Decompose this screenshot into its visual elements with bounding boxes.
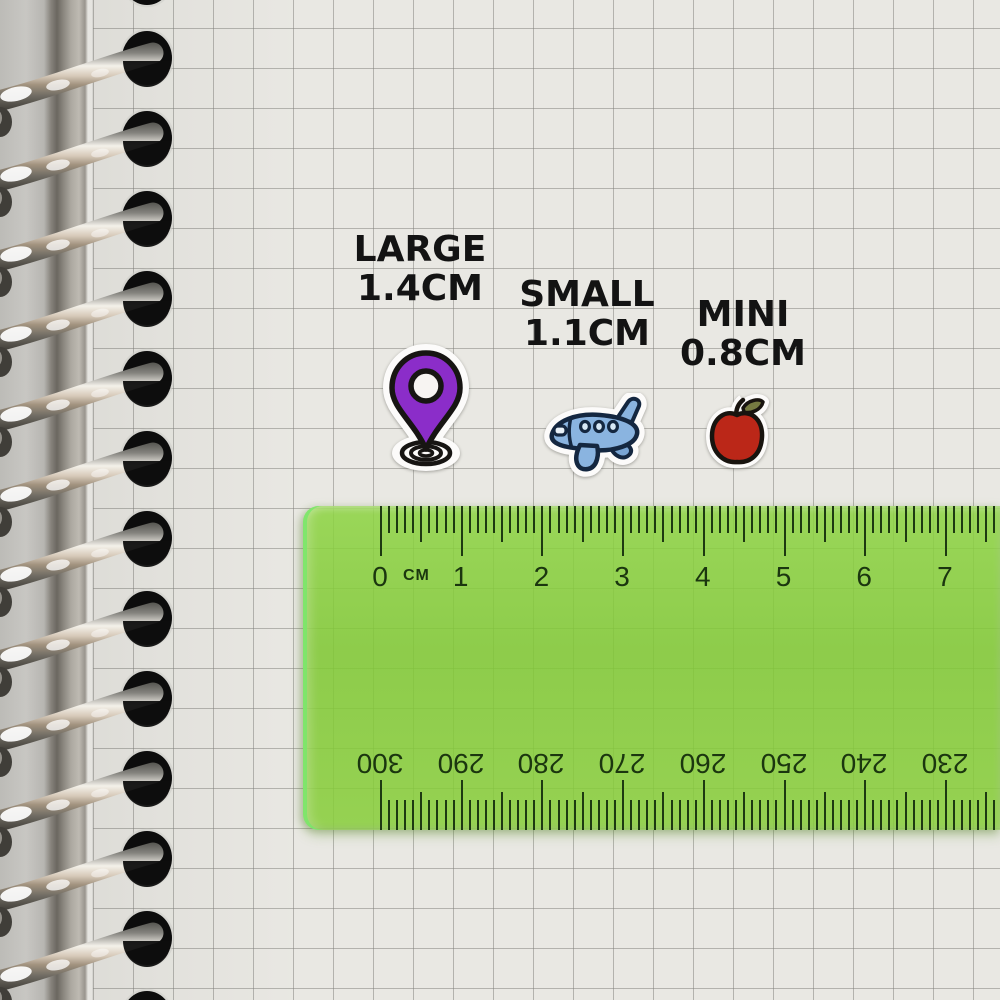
ruler-mm-tick [953,800,955,830]
ruler-cm-tick [759,506,761,533]
ruler-cm-tick [921,506,923,533]
ruler-cm-tick [719,506,721,533]
ruler-mm-tick [598,800,600,830]
ruler-mm-tick [727,800,729,830]
ruler-mm-tick [428,800,430,830]
ruler-mm-tick [743,792,745,830]
ruler-cm-tick [784,506,786,556]
ruler-cm-number: 1 [453,561,469,593]
ruler-mm-number: 260 [679,747,726,779]
ruler-cm-tick [485,506,487,533]
ruler-mm-tick [445,800,447,830]
ruler-mm-tick [961,800,963,830]
ruler-cm-tick [671,506,673,533]
ruler-cm-tick [775,506,777,533]
ruler-mm-tick [719,800,721,830]
ruler-mm-tick [872,800,874,830]
ruler-mm-tick [501,792,503,830]
ruler-mm-tick [622,780,624,830]
ruler-mm-tick [574,800,576,830]
ruler-mm-tick [380,780,382,830]
ruler-mm-tick [420,792,422,830]
ruler-mm-tick [969,800,971,830]
ruler-cm-tick [493,506,495,533]
ruler-mm-tick [388,800,390,830]
ruler-mm-tick [792,800,794,830]
binding-ring [121,0,173,6]
ruler-mm-tick [469,800,471,830]
ruler-mm-tick [913,800,915,830]
ruler-cm-tick [888,506,890,533]
ruler-cm-tick [445,506,447,533]
ruler-cm-tick [517,506,519,533]
ruler-cm-tick [937,506,939,533]
ruler-mm-tick [896,800,898,830]
ruler-cm-tick [558,506,560,533]
ruler-mm-tick [880,800,882,830]
ruler-mm-tick [453,800,455,830]
ruler-cm-tick [533,506,535,533]
ruler-mm-tick [679,800,681,830]
ruler-cm-tick [638,506,640,533]
ruler-cm-tick [695,506,697,533]
ruler-cm-tick [808,506,810,533]
ruler-mm-tick [832,800,834,830]
ruler-cm-tick [824,506,826,542]
size-label-small-size: 1.1CM [497,314,677,353]
ruler-cm-tick [654,506,656,533]
ruler-mm-tick [703,780,705,830]
ruler-cm-tick [566,506,568,533]
ruler-cm-tick [598,506,600,533]
ruler-mm-tick [630,800,632,830]
notebook-photo-scene: LARGE 1.4CM SMALL 1.1CM MINI 0.8CM [0,0,1000,1000]
size-label-large-size: 1.4CM [330,269,510,308]
ruler-cm-tick [461,506,463,556]
ruler-cm-tick [985,506,987,542]
ruler-mm-number: 280 [518,747,565,779]
ruler-cm-tick [856,506,858,533]
ruler-mm-tick [566,800,568,830]
ruler-mm-tick [461,780,463,830]
location-pin-icon [380,341,472,475]
ruler-mm-tick [945,780,947,830]
ruler-cm-tick [679,506,681,533]
ruler-mm-tick [824,792,826,830]
ruler-mm-tick [808,800,810,830]
ruler-cm-tick [477,506,479,533]
ruler-cm-tick [953,506,955,533]
ruler-mm-tick [784,780,786,830]
ruler-cm-tick [404,506,406,533]
ruler-mm-tick [759,800,761,830]
ruler-mm-tick [800,800,802,830]
size-label-mini-name: MINI [654,295,832,334]
ruler-mm-number: 250 [760,747,807,779]
ruler-cm-tick [913,506,915,533]
ruler-mm-tick [412,800,414,830]
ruler-mm-tick [816,800,818,830]
ruler-cm-tick [977,506,979,533]
ruler-cm-tick [816,506,818,533]
ruler-mm-tick [840,800,842,830]
ruler-mm-tick [888,800,890,830]
ruler-mm-tick [671,800,673,830]
ruler-cm-tick [767,506,769,533]
binding-ring [0,910,173,1000]
ruler-cm-number: 6 [856,561,872,593]
ruler-mm-tick [590,800,592,830]
ruler-mm-tick [477,800,479,830]
ruler-mm-tick [711,800,713,830]
ruler-cm-tick [711,506,713,533]
ruler-mm-tick [436,800,438,830]
ruler-cm-tick [525,506,527,533]
ruler-cm-number: 7 [937,561,953,593]
ruler-mm-number: 240 [841,747,888,779]
ruler-cm-tick [800,506,802,533]
ruler-mm-tick [985,792,987,830]
ruler-mm-number: 270 [599,747,646,779]
ruler-cm-tick [662,506,664,542]
ruler-cm-tick [582,506,584,542]
ruler-cm-tick [574,506,576,533]
ruler-mm-tick [775,800,777,830]
spiral-binding [0,0,200,1000]
size-label-small-name: SMALL [497,275,677,314]
ruler-mm-number: 300 [357,747,404,779]
ruler-cm-tick [646,506,648,533]
ruler-mm-tick [404,800,406,830]
ruler-cm-number: 0 [372,561,388,593]
ruler: CM 01234567300290280270260250240230 [303,506,1000,830]
ruler-mm-tick [614,800,616,830]
ruler-mm-tick [864,780,866,830]
ruler-mm-tick [517,800,519,830]
ruler-cm-tick [687,506,689,533]
binding-ring [121,990,173,1000]
ruler-mm-tick [493,800,495,830]
ruler-cm-tick [469,506,471,533]
ruler-cm-tick [380,506,382,556]
ruler-cm-tick [590,506,592,533]
ruler-mm-tick [856,800,858,830]
ruler-cm-tick [840,506,842,533]
ruler-cm-tick [735,506,737,533]
ruler-cm-tick [727,506,729,533]
ruler-cm-tick [606,506,608,533]
ruler-cm-number: 2 [534,561,550,593]
ruler-mm-tick [525,800,527,830]
ruler-mm-tick [993,800,995,830]
ruler-cm-tick [549,506,551,533]
ruler-cm-tick [388,506,390,533]
ruler-mm-tick [937,800,939,830]
ruler-mm-tick [977,800,979,830]
ruler-cm-number: 4 [695,561,711,593]
ruler-mm-tick [751,800,753,830]
ruler-cm-tick [848,506,850,533]
ruler-cm-tick [630,506,632,533]
ruler-mm-tick [638,800,640,830]
binding-hole [122,0,172,5]
ruler-cm-tick [896,506,898,533]
ruler-cm-tick [905,506,907,542]
ruler-mm-tick [485,800,487,830]
ruler-mm-tick [929,800,931,830]
ruler-mm-tick [735,800,737,830]
ruler-cm-tick [743,506,745,542]
ruler-cm-tick [872,506,874,533]
ruler-mm-number: 290 [437,747,484,779]
ruler-mm-tick [582,792,584,830]
ruler-cm-tick [864,506,866,556]
ruler-mm-tick [646,800,648,830]
ruler-cm-number: 3 [614,561,630,593]
ruler-cm-tick [541,506,543,556]
size-label-mini-size: 0.8CM [654,334,832,373]
ruler-mm-tick [558,800,560,830]
size-label-small: SMALL 1.1CM [497,275,677,353]
size-label-mini: MINI 0.8CM [654,295,832,373]
ruler-cm-tick [792,506,794,533]
ruler-mm-tick [549,800,551,830]
ruler-cm-tick [622,506,624,556]
ruler-mm-tick [662,792,664,830]
ruler-cm-number: 5 [776,561,792,593]
ruler-mm-tick [396,800,398,830]
ruler-cm-tick [703,506,705,556]
ruler-unit-label: CM [403,567,430,585]
size-label-large-name: LARGE [330,230,510,269]
ruler-mm-tick [687,800,689,830]
ruler-cm-tick [453,506,455,533]
ruler-mm-tick [509,800,511,830]
ruler-cm-tick [420,506,422,542]
ruler-cm-tick [614,506,616,533]
size-label-large: LARGE 1.4CM [330,230,510,308]
apple-icon [703,391,773,471]
airplane-icon [542,393,656,477]
ruler-cm-tick [993,506,995,533]
ruler-mm-tick [533,800,535,830]
ruler-cm-tick [961,506,963,533]
ruler-mm-tick [606,800,608,830]
ruler-cm-tick [412,506,414,533]
ruler-cm-tick [751,506,753,533]
ruler-cm-tick [945,506,947,556]
ruler-cm-tick [509,506,511,533]
ruler-mm-number: 230 [922,747,969,779]
ruler-mm-tick [921,800,923,830]
ruler-cm-tick [969,506,971,533]
ruler-cm-tick [929,506,931,533]
ruler-cm-tick [501,506,503,542]
ruler-cm-tick [832,506,834,533]
ruler-mm-tick [541,780,543,830]
ruler-cm-tick [428,506,430,533]
ruler-mm-tick [848,800,850,830]
ruler-cm-tick [396,506,398,533]
ruler-mm-tick [905,792,907,830]
ruler-mm-tick [695,800,697,830]
ruler-cm-tick [880,506,882,533]
ruler-mm-tick [767,800,769,830]
ruler-mm-tick [654,800,656,830]
ruler-cm-tick [436,506,438,533]
